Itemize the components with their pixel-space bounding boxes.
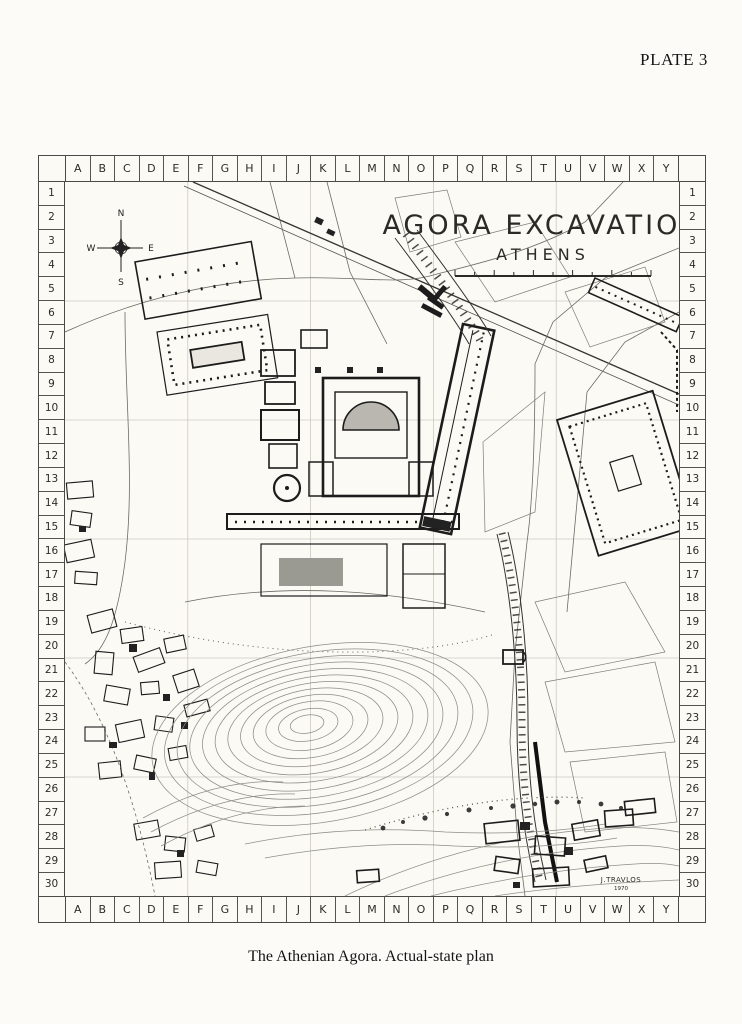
- grid-border-top: ABCDEFGHIJKLMNOPQRSTUVWXY: [39, 156, 705, 182]
- grid-row-label: 9: [680, 373, 705, 397]
- grid-row-label: 12: [680, 444, 705, 468]
- grid-row-label: 14: [39, 492, 64, 516]
- grid-row-label: 2: [39, 206, 64, 230]
- plate-caption: The Athenian Agora. Actual-state plan: [0, 948, 742, 966]
- grid-row-label: 22: [680, 682, 705, 706]
- grid-column-label: O: [409, 156, 434, 181]
- grid-row-label: 1: [680, 182, 705, 206]
- grid-column-label: J: [287, 156, 312, 181]
- grid-column-label: T: [532, 156, 557, 181]
- map-drawing-area: AGORA EXCAVATION ATHENS: [65, 182, 679, 896]
- grid-row-label: 25: [39, 754, 64, 778]
- grid-column-label: C: [115, 897, 140, 922]
- grid-column-label: I: [262, 156, 287, 181]
- signature-name: J.TRAVLOS: [600, 876, 641, 884]
- grid-row-label: 26: [680, 778, 705, 802]
- grid-row-label: 17: [39, 563, 64, 587]
- grid-column-label: K: [311, 156, 336, 181]
- city-blocks: [395, 190, 677, 832]
- library-of-hadrian: [557, 391, 679, 556]
- grid-row-label: 19: [39, 611, 64, 635]
- grid-row-label: 22: [39, 682, 64, 706]
- grid-row-label: 1: [39, 182, 64, 206]
- grid-row-label: 8: [680, 349, 705, 373]
- grid-row-label: 15: [680, 516, 705, 540]
- grid-corner-bottom-left: [39, 897, 66, 922]
- grid-row-label: 16: [39, 539, 64, 563]
- grid-row-label: 20: [680, 635, 705, 659]
- grid-column-label: G: [213, 897, 238, 922]
- grid-row-label: 5: [39, 277, 64, 301]
- northwest-building: [135, 242, 261, 320]
- grid-column-label: T: [532, 897, 557, 922]
- grid-column-label: V: [581, 156, 606, 181]
- map-subtitle: ATHENS: [496, 245, 590, 264]
- grid-row-label: 29: [39, 849, 64, 873]
- agora-map: ABCDEFGHIJKLMNOPQRSTUVWXY ABCDEFGHIJKLMN…: [38, 155, 706, 923]
- housing-blocks-southwest: [65, 481, 218, 879]
- temple-hephaisteion: [157, 314, 278, 395]
- grid-column-label: A: [66, 156, 91, 181]
- grid-column-label: N: [385, 897, 410, 922]
- scanned-book-page: PLATE 3 ABCDEFGHIJKLMNOPQRSTUVWXY ABCDEF…: [0, 0, 742, 1024]
- grid-row-label: 3: [680, 230, 705, 254]
- grid-column-label: N: [385, 156, 410, 181]
- grid-row-label: 2: [680, 206, 705, 230]
- compass-west-label: W: [87, 244, 96, 254]
- grid-column-label: Q: [458, 156, 483, 181]
- compass-north-label: N: [118, 209, 125, 219]
- grid-column-label: R: [483, 156, 508, 181]
- grid-border-right: 1234567891011121314151617181920212223242…: [679, 182, 705, 896]
- grid-column-label: W: [605, 156, 630, 181]
- grid-column-label: X: [630, 897, 655, 922]
- signature-year: 1970: [614, 886, 628, 892]
- grid-border-left: 1234567891011121314151617181920212223242…: [39, 182, 65, 896]
- grid-row-label: 9: [39, 373, 64, 397]
- grid-row-label: 25: [680, 754, 705, 778]
- grid-row-label: 28: [39, 825, 64, 849]
- odeon-building: [309, 378, 433, 496]
- grid-column-label: S: [507, 156, 532, 181]
- stoa-of-attalos: [420, 324, 495, 534]
- grid-row-label: 11: [39, 420, 64, 444]
- southeast-ruins: [357, 798, 656, 888]
- grid-row-label: 30: [39, 873, 64, 896]
- grid-column-label: H: [238, 156, 263, 181]
- grid-row-label: 24: [39, 730, 64, 754]
- grid-column-label: X: [630, 156, 655, 181]
- grid-row-label: 4: [680, 253, 705, 277]
- compass-rose: N E S W: [87, 209, 155, 288]
- grid-row-label: 10: [39, 396, 64, 420]
- excavation-boundary: [125, 622, 495, 652]
- map-svg: AGORA EXCAVATION ATHENS: [65, 182, 679, 896]
- grid-column-label: I: [262, 897, 287, 922]
- south-square-buildings: [261, 544, 445, 608]
- grid-column-label: E: [164, 897, 189, 922]
- slope-rubble-dots: [381, 800, 623, 831]
- grid-row-label: 16: [680, 539, 705, 563]
- grid-column-label: G: [213, 156, 238, 181]
- grid-row-label: 11: [680, 420, 705, 444]
- grid-column-label: Y: [654, 156, 678, 181]
- grid-column-label: H: [238, 897, 263, 922]
- faint-grid-lines: [65, 182, 679, 896]
- grid-row-label: 21: [39, 659, 64, 683]
- grid-row-label: 27: [39, 802, 64, 826]
- grid-column-label: U: [556, 156, 581, 181]
- grid-row-label: 18: [39, 587, 64, 611]
- map-title: AGORA EXCAVATION: [382, 210, 679, 241]
- grid-row-label: 20: [39, 635, 64, 659]
- grid-column-label: B: [91, 897, 116, 922]
- grid-column-label: V: [581, 897, 606, 922]
- plate-number-label: PLATE 3: [640, 50, 708, 70]
- grid-column-label: D: [140, 156, 165, 181]
- grid-row-label: 19: [680, 611, 705, 635]
- grid-row-label: 10: [680, 396, 705, 420]
- grid-row-label: 15: [39, 516, 64, 540]
- grid-row-label: 5: [680, 277, 705, 301]
- grid-row-label: 12: [39, 444, 64, 468]
- grid-column-label: J: [287, 897, 312, 922]
- grid-column-label: W: [605, 897, 630, 922]
- grid-column-label: S: [507, 897, 532, 922]
- grid-row-label: 13: [680, 468, 705, 492]
- grid-row-label: 24: [680, 730, 705, 754]
- grid-row-label: 7: [680, 325, 705, 349]
- grid-row-label: 18: [680, 587, 705, 611]
- grid-column-label: L: [336, 897, 361, 922]
- grid-row-label: 27: [680, 802, 705, 826]
- grid-row-label: 14: [680, 492, 705, 516]
- compass-east-label: E: [148, 244, 154, 254]
- grid-corner-top-right: [678, 156, 705, 181]
- grid-row-label: 3: [39, 230, 64, 254]
- grid-border-bottom: ABCDEFGHIJKLMNOPQRSTUVWXY: [39, 896, 705, 922]
- grid-column-label: C: [115, 156, 140, 181]
- grid-column-label: M: [360, 897, 385, 922]
- stoa-top-right: [588, 278, 679, 332]
- grid-row-label: 7: [39, 325, 64, 349]
- grid-row-label: 29: [680, 849, 705, 873]
- grid-row-label: 4: [39, 253, 64, 277]
- grid-column-label: O: [409, 897, 434, 922]
- grid-row-label: 6: [680, 301, 705, 325]
- grid-row-label: 17: [680, 563, 705, 587]
- grid-row-label: 26: [39, 778, 64, 802]
- grid-row-label: 23: [680, 706, 705, 730]
- grid-column-label: P: [434, 897, 459, 922]
- grid-column-label: L: [336, 156, 361, 181]
- grid-row-label: 28: [680, 825, 705, 849]
- grid-row-label: 23: [39, 706, 64, 730]
- grid-column-label: R: [483, 897, 508, 922]
- grid-column-label: E: [164, 156, 189, 181]
- grid-column-label: P: [434, 156, 459, 181]
- grid-row-label: 8: [39, 349, 64, 373]
- grid-corner-bottom-right: [678, 897, 705, 922]
- grid-column-label: A: [66, 897, 91, 922]
- grid-column-label: F: [189, 156, 214, 181]
- grid-column-label: F: [189, 897, 214, 922]
- grid-column-label: K: [311, 897, 336, 922]
- grid-row-label: 21: [680, 659, 705, 683]
- grid-column-label: U: [556, 897, 581, 922]
- grid-column-label: M: [360, 156, 385, 181]
- compass-south-label: S: [118, 278, 124, 288]
- grid-column-label: D: [140, 897, 165, 922]
- grid-column-label: B: [91, 156, 116, 181]
- grid-column-label: Q: [458, 897, 483, 922]
- grid-column-label: Y: [654, 897, 678, 922]
- roman-wall-right-edge: [661, 332, 677, 412]
- grid-row-label: 6: [39, 301, 64, 325]
- grid-row-label: 13: [39, 468, 64, 492]
- grid-row-label: 30: [680, 873, 705, 896]
- grid-corner-top-left: [39, 156, 66, 181]
